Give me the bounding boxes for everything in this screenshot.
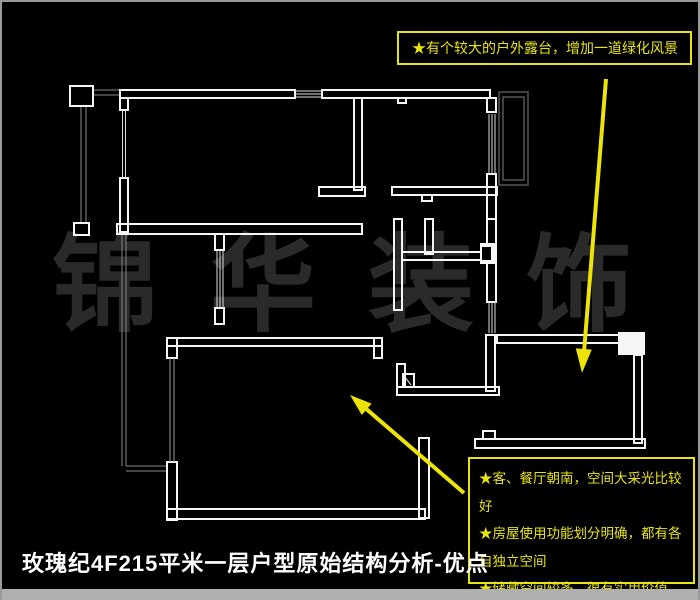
advantage-note-1: ★客、餐厅朝南，空间大采光比较好 bbox=[479, 465, 689, 520]
advantage-note-2: ★房屋使用功能划分明确，都有各自独立空间 bbox=[479, 520, 689, 575]
bottom-gray-bar bbox=[2, 589, 700, 600]
annotation-box-terrace: ★有个较大的户外露台，增加一道绿化风景 bbox=[397, 31, 692, 65]
terrace-arrow bbox=[576, 79, 606, 373]
screenshot-stage: 锦华装饰 bbox=[0, 0, 700, 600]
right-balcony-lines bbox=[499, 92, 528, 185]
window-lines bbox=[123, 91, 496, 462]
annotation-box-advantages: ★客、餐厅朝南，空间大采光比较好 ★房屋使用功能划分明确，都有各自独立空间 ★储… bbox=[468, 457, 695, 584]
annotation-terrace-text: ★有个较大的户外露台，增加一道绿化风景 bbox=[412, 40, 678, 56]
living-room-arrow bbox=[350, 395, 464, 493]
left-balcony-lines bbox=[81, 90, 167, 471]
page-title: 玫瑰纪4F215平米一层户型原始结构分析-优点 bbox=[22, 546, 489, 578]
walls bbox=[70, 86, 645, 520]
wall-blocks bbox=[405, 243, 645, 385]
